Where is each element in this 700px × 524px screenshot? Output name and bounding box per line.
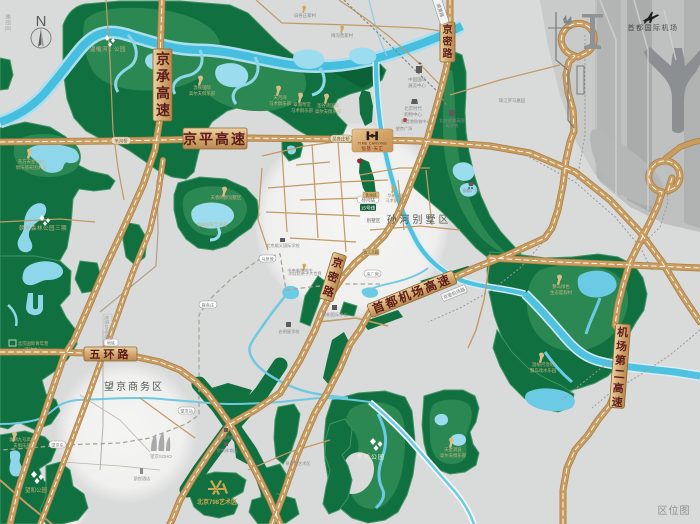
svg-text:北京顺义国际学校: 北京顺义国际学校 bbox=[266, 242, 300, 249]
svg-text:五环路: 五环路 bbox=[90, 347, 132, 361]
svg-text:朝阳区: 朝阳区 bbox=[4, 14, 11, 32]
svg-text:翠湖草堂: 翠湖草堂 bbox=[293, 101, 311, 108]
svg-text:珠江罗马嘉园: 珠江罗马嘉园 bbox=[499, 97, 526, 104]
svg-text:颐堤港购物中心: 颐堤港购物中心 bbox=[401, 118, 431, 125]
svg-text:来广营: 来广营 bbox=[366, 271, 379, 278]
svg-text:京: 京 bbox=[156, 51, 170, 67]
svg-text:高尔夫俱乐部: 高尔夫俱乐部 bbox=[315, 108, 342, 115]
svg-text:望京商务区: 望京商务区 bbox=[104, 380, 164, 393]
svg-text:温榆国际: 温榆国际 bbox=[193, 84, 211, 91]
svg-text:展览中心: 展览中心 bbox=[408, 82, 426, 89]
svg-text:望京体育园: 望京体育园 bbox=[217, 447, 238, 454]
svg-text:吴各庄桥: 吴各庄桥 bbox=[332, 136, 350, 143]
svg-text:高: 高 bbox=[612, 381, 624, 396]
svg-text:恒基·天汇: 恒基·天汇 bbox=[361, 145, 383, 152]
svg-text:机: 机 bbox=[617, 325, 629, 340]
svg-text:地铁: 地铁 bbox=[107, 340, 115, 346]
svg-text:TIME CARVING: TIME CARVING bbox=[358, 142, 387, 146]
svg-text:望和公园: 望和公园 bbox=[25, 486, 48, 494]
svg-text:马泉营: 马泉营 bbox=[261, 256, 274, 263]
svg-text:北京798艺术区: 北京798艺术区 bbox=[197, 498, 237, 506]
svg-text:地铁15号线: 地铁15号线 bbox=[103, 315, 110, 339]
svg-text:朝阳国际学校: 朝阳国际学校 bbox=[322, 311, 348, 318]
svg-text:北京时代: 北京时代 bbox=[404, 105, 422, 112]
svg-text:路: 路 bbox=[443, 47, 454, 60]
svg-text:N: N bbox=[36, 13, 47, 30]
svg-text:马术俱乐部: 马术俱乐部 bbox=[386, 197, 407, 204]
svg-text:北湖九号高尔: 北湖九号高尔 bbox=[9, 436, 36, 443]
svg-text:际学校: 际学校 bbox=[446, 122, 459, 129]
svg-text:温榆河 | 公园: 温榆河 | 公园 bbox=[90, 45, 126, 53]
svg-text:东方天星乡村: 东方天星乡村 bbox=[18, 158, 45, 165]
svg-text:场: 场 bbox=[616, 339, 628, 354]
svg-text:中国国际: 中国国际 bbox=[408, 76, 426, 83]
svg-text:温榆河湿地: 温榆河湿地 bbox=[532, 361, 555, 368]
svg-text:区位图: 区位图 bbox=[658, 504, 691, 517]
svg-text:速: 速 bbox=[611, 394, 623, 409]
svg-text:高尔夫俱乐部: 高尔夫俱乐部 bbox=[440, 452, 467, 459]
svg-text:黑桥公园: 黑桥公园 bbox=[357, 453, 385, 461]
svg-text:丽都广场: 丽都广场 bbox=[463, 187, 480, 194]
svg-text:二: 二 bbox=[613, 369, 625, 382]
svg-text:购物中心: 购物中心 bbox=[404, 111, 422, 118]
svg-text:高尔夫俱乐部: 高尔夫俱乐部 bbox=[189, 90, 216, 97]
svg-text:蟹岛戏水乐园: 蟹岛戏水乐园 bbox=[530, 367, 557, 374]
svg-text:朝来森林公园三期: 朝来森林公园三期 bbox=[19, 224, 67, 232]
svg-text:京: 京 bbox=[443, 23, 453, 36]
svg-text:蟹岛绿色: 蟹岛绿色 bbox=[552, 283, 570, 290]
svg-text:望京SOHO: 望京SOHO bbox=[150, 453, 172, 460]
svg-text:启明星学校: 启明星学校 bbox=[279, 328, 301, 335]
svg-text:天香颐郡别墅区: 天香颐郡别墅区 bbox=[211, 194, 242, 201]
svg-text:密: 密 bbox=[443, 35, 453, 48]
svg-text:中央美院附中: 中央美院附中 bbox=[287, 267, 312, 274]
svg-text:梅沟营新村: 梅沟营新村 bbox=[331, 32, 354, 39]
svg-text:苇沟桥: 苇沟桥 bbox=[114, 138, 128, 145]
svg-text:马术俱乐部: 马术俱乐部 bbox=[291, 107, 314, 114]
svg-text:15号线: 15号线 bbox=[361, 205, 376, 212]
svg-text:草场地艺术区: 草场地艺术区 bbox=[285, 460, 310, 467]
svg-text:天河湾: 天河湾 bbox=[273, 94, 287, 101]
svg-text:生态度假村: 生态度假村 bbox=[550, 289, 573, 296]
svg-text:别墅区: 别墅区 bbox=[367, 217, 381, 224]
svg-text:望京东: 望京东 bbox=[51, 442, 64, 449]
svg-text:望京广场: 望京广场 bbox=[396, 125, 413, 132]
svg-text:第: 第 bbox=[614, 353, 626, 368]
svg-text:高: 高 bbox=[156, 85, 170, 101]
svg-text:首都国际机场: 首都国际机场 bbox=[628, 23, 679, 32]
svg-text:黄康路: 黄康路 bbox=[365, 193, 377, 198]
svg-text:崔各庄: 崔各庄 bbox=[202, 302, 215, 309]
svg-text:速: 速 bbox=[156, 102, 170, 118]
svg-text:北京国际青年营: 北京国际青年营 bbox=[18, 340, 49, 347]
svg-text:香江北路: 香江北路 bbox=[363, 250, 378, 255]
svg-text:白各庄新村: 白各庄新村 bbox=[294, 12, 317, 19]
svg-text:孙河别墅区: 孙河别墅区 bbox=[387, 213, 452, 226]
svg-text:温榆国际艺术区: 温榆国际艺术区 bbox=[197, 221, 228, 228]
svg-text:俱乐部天团木源: 俱乐部天团木源 bbox=[16, 164, 47, 171]
svg-text:夫俱乐部: 夫俱乐部 bbox=[13, 442, 31, 449]
svg-text:活动中心: 活动中心 bbox=[24, 346, 42, 353]
svg-text:京平高速: 京平高速 bbox=[183, 131, 247, 147]
svg-text:圣谷湾国际: 圣谷湾国际 bbox=[317, 102, 340, 109]
svg-text:马术俱乐部: 马术俱乐部 bbox=[269, 100, 292, 107]
svg-text:凯悦酒店: 凯悦酒店 bbox=[134, 475, 151, 482]
svg-text:承: 承 bbox=[156, 68, 170, 84]
svg-text:中意鞋城: 中意鞋城 bbox=[219, 434, 237, 441]
svg-text:望京站: 望京站 bbox=[180, 408, 193, 415]
svg-text:天星调良: 天星调良 bbox=[444, 446, 462, 453]
